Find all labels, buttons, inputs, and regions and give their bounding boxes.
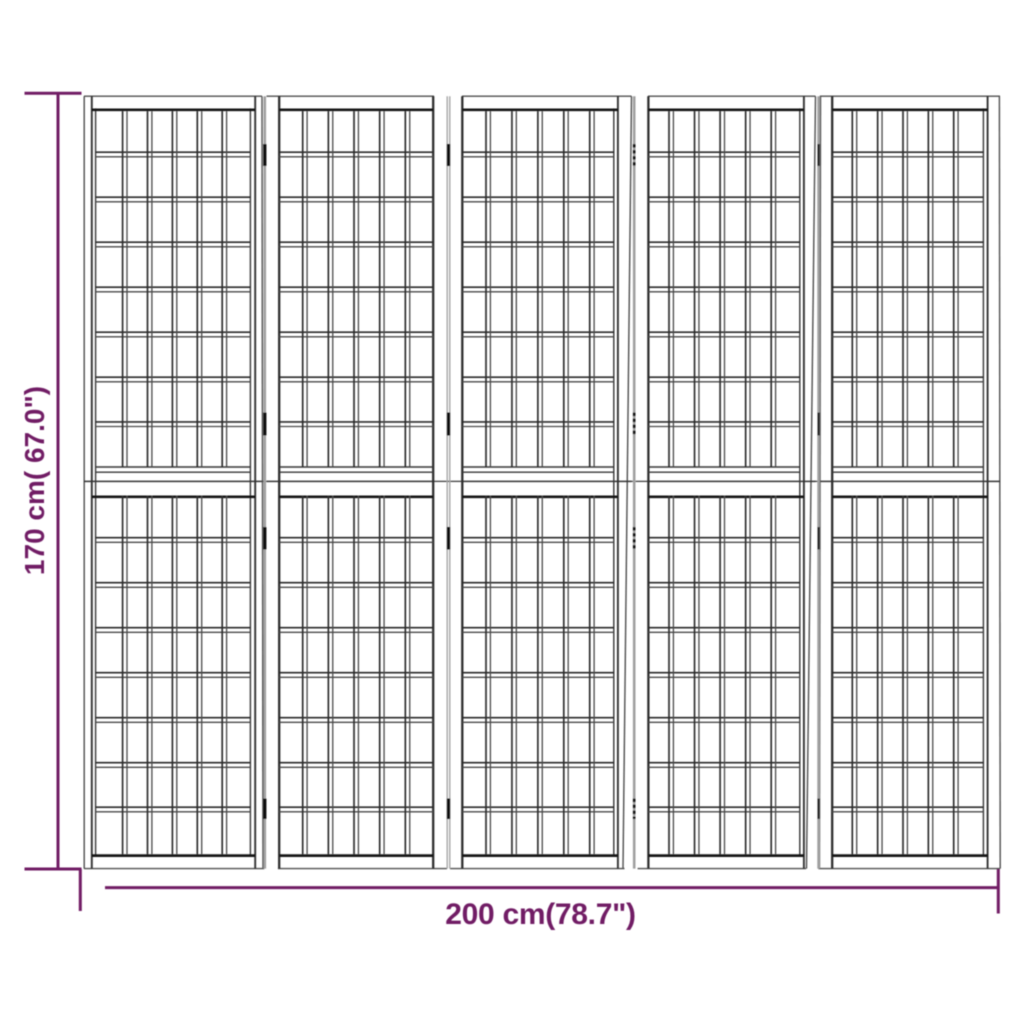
svg-text:200 cm(78.7"): 200 cm(78.7") bbox=[445, 898, 635, 931]
svg-text:170 cm( 67.0"): 170 cm( 67.0") bbox=[19, 386, 50, 575]
